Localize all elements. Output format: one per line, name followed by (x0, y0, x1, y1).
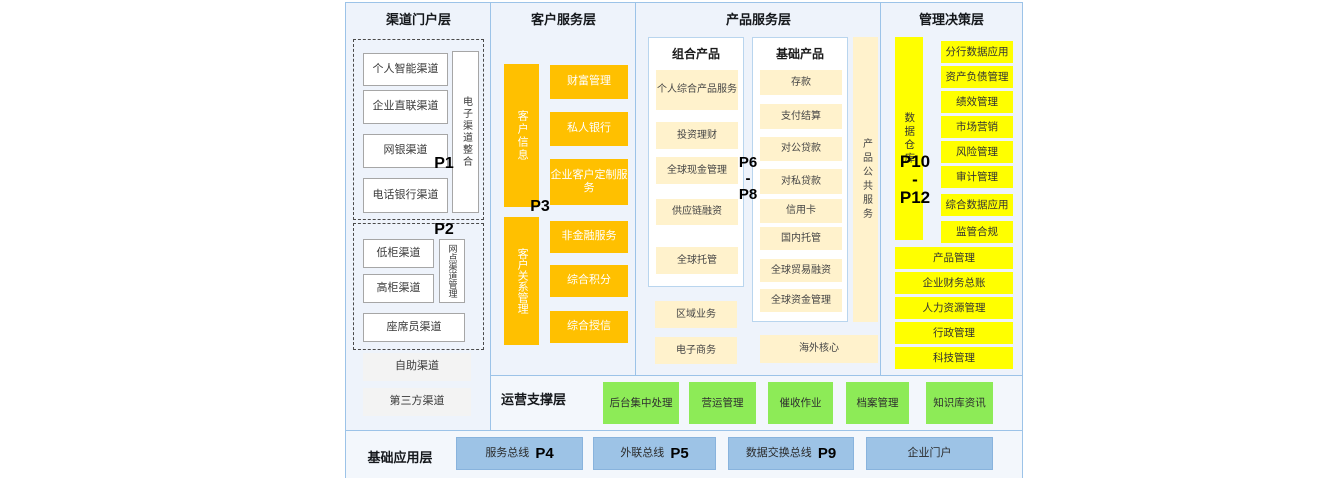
node-domestic-custody: 国内托管 (760, 227, 842, 250)
node-wealth-management: 财富管理 (550, 65, 628, 99)
basic-products-header: 基础产品 (753, 45, 847, 62)
node-data-exchange-bus: 数据交换总线 P9 (728, 437, 854, 470)
combo-products-header: 组合产品 (649, 45, 743, 62)
p6-label: P6 (739, 155, 757, 171)
node-enterprise-portal: 企业门户 (866, 437, 993, 470)
foundation-layer-title: 基础应用层 (354, 447, 446, 466)
node-overseas-core: 海外核心 (760, 335, 878, 363)
product-layer-title: 产品服务层 (636, 9, 881, 28)
node-collection-operations: 催收作业 (768, 382, 833, 424)
node-customer-information: 客户信息 (504, 64, 539, 207)
node-corporate-loans: 对公贷款 (760, 137, 842, 161)
node-external-bus: 外联总线 P5 (593, 437, 716, 470)
p10-label: P10 (900, 153, 930, 171)
node-comprehensive-data-application: 综合数据应用 (941, 194, 1013, 216)
p5-label: P5 (670, 445, 688, 463)
node-risk-management: 风险管理 (941, 141, 1013, 163)
node-marketing: 市场营销 (941, 116, 1013, 138)
node-self-service-channel: 自助渠道 (363, 353, 471, 381)
p1-label: P1 (426, 156, 462, 173)
node-low-counter-channel: 低柜渠道 (363, 239, 434, 268)
node-asset-liability-management: 资产负债管理 (941, 66, 1013, 88)
p9-label: P9 (818, 445, 836, 463)
node-agent-channel: 座席员渠道 (363, 313, 465, 342)
p4-label: P4 (535, 445, 553, 463)
node-telephone-banking-channel: 电话银行渠道 (363, 178, 448, 213)
node-performance-management: 绩效管理 (941, 91, 1013, 113)
node-deposits: 存款 (760, 70, 842, 95)
node-electronic-channel-integration: 电子渠道整合 (452, 51, 479, 213)
node-service-bus: 服务总线 P4 (456, 437, 583, 470)
node-e-commerce: 电子商务 (655, 337, 737, 364)
node-private-banking: 私人银行 (550, 112, 628, 146)
p6-p8-label: P6 - P8 (732, 155, 764, 202)
enterprise-portal-label: 企业门户 (908, 447, 952, 460)
node-high-counter-channel: 高柜渠道 (363, 274, 434, 303)
node-regulatory-compliance: 监管合规 (941, 221, 1013, 243)
node-supply-chain-financing: 供应链融资 (656, 199, 738, 225)
node-payment-settlement: 支付结算 (760, 104, 842, 129)
node-personal-loans: 对私贷款 (760, 169, 842, 194)
architecture-diagram: 渠道门户层 个人智能渠道 企业直联渠道 网银渠道 电话银行渠道 电子渠道整合 P… (0, 0, 1333, 482)
p12-label: P12 (900, 189, 930, 207)
node-corporate-custom-service: 企业客户定制服务 (550, 159, 628, 205)
node-backoffice-centralized-processing: 后台集中处理 (603, 382, 679, 424)
node-operations-management: 营运管理 (689, 382, 756, 424)
node-enterprise-financial-ledger: 企业财务总账 (895, 272, 1013, 294)
diagram-frame: 渠道门户层 个人智能渠道 企业直联渠道 网银渠道 电话银行渠道 电子渠道整合 P… (345, 2, 1023, 478)
node-global-cash-management: 全球现金管理 (656, 157, 738, 184)
node-branch-channel-management: 网点渠道管理 (439, 239, 465, 303)
node-comprehensive-credit: 综合授信 (550, 311, 628, 343)
service-bus-label: 服务总线 (485, 447, 529, 460)
p3-label: P3 (522, 199, 558, 216)
node-global-custody: 全球托管 (656, 247, 738, 274)
node-technology-management: 科技管理 (895, 347, 1013, 369)
combo-products-panel: 组合产品 个人综合产品服务 投资理财 全球现金管理 供应链融资 全球托管 (648, 37, 744, 287)
data-exchange-bus-label: 数据交换总线 (746, 447, 812, 460)
p6-p8-dash: - (746, 171, 751, 187)
node-personal-comprehensive-product-service: 个人综合产品服务 (656, 70, 738, 110)
node-human-resources-management: 人力资源管理 (895, 297, 1013, 319)
node-regional-business: 区域业务 (655, 301, 737, 328)
p2-label: P2 (426, 222, 462, 239)
node-branch-data-application: 分行数据应用 (941, 41, 1013, 63)
p10-p12-label: P10 - P12 (892, 153, 938, 207)
node-non-financial-services: 非金融服务 (550, 221, 628, 253)
node-credit-card: 信用卡 (760, 199, 842, 223)
customer-layer-title: 客户服务层 (491, 9, 636, 28)
p10-p12-dash: - (912, 171, 918, 189)
external-bus-label: 外联总线 (620, 447, 664, 460)
node-comprehensive-points: 综合积分 (550, 265, 628, 297)
node-product-management: 产品管理 (895, 247, 1013, 269)
node-personal-smart-channel: 个人智能渠道 (363, 53, 448, 86)
basic-products-panel: 基础产品 存款 支付结算 对公贷款 对私贷款 信用卡 国内托管 全球贸易融资 全… (752, 37, 848, 322)
node-enterprise-direct-channel: 企业直联渠道 (363, 90, 448, 124)
node-global-trade-financing: 全球贸易融资 (760, 259, 842, 282)
node-administrative-management: 行政管理 (895, 322, 1013, 344)
operation-layer-title: 运营支撑层 (501, 389, 581, 408)
node-knowledge-base-information: 知识库资讯 (926, 382, 993, 424)
p8-label: P8 (739, 187, 757, 203)
node-investment-wealth: 投资理财 (656, 122, 738, 149)
node-product-public-service: 产品公共服务 (853, 37, 878, 322)
node-global-fund-management: 全球资金管理 (760, 289, 842, 312)
channel-layer-title: 渠道门户层 (346, 9, 491, 28)
node-customer-relationship-management: 客户关系管理 (504, 217, 539, 345)
node-audit-management: 审计管理 (941, 166, 1013, 188)
node-data-warehouse: 数据仓库 (895, 37, 923, 240)
management-layer-title: 管理决策层 (881, 9, 1022, 28)
node-third-party-channel: 第三方渠道 (363, 388, 471, 416)
node-archive-management: 档案管理 (846, 382, 909, 424)
